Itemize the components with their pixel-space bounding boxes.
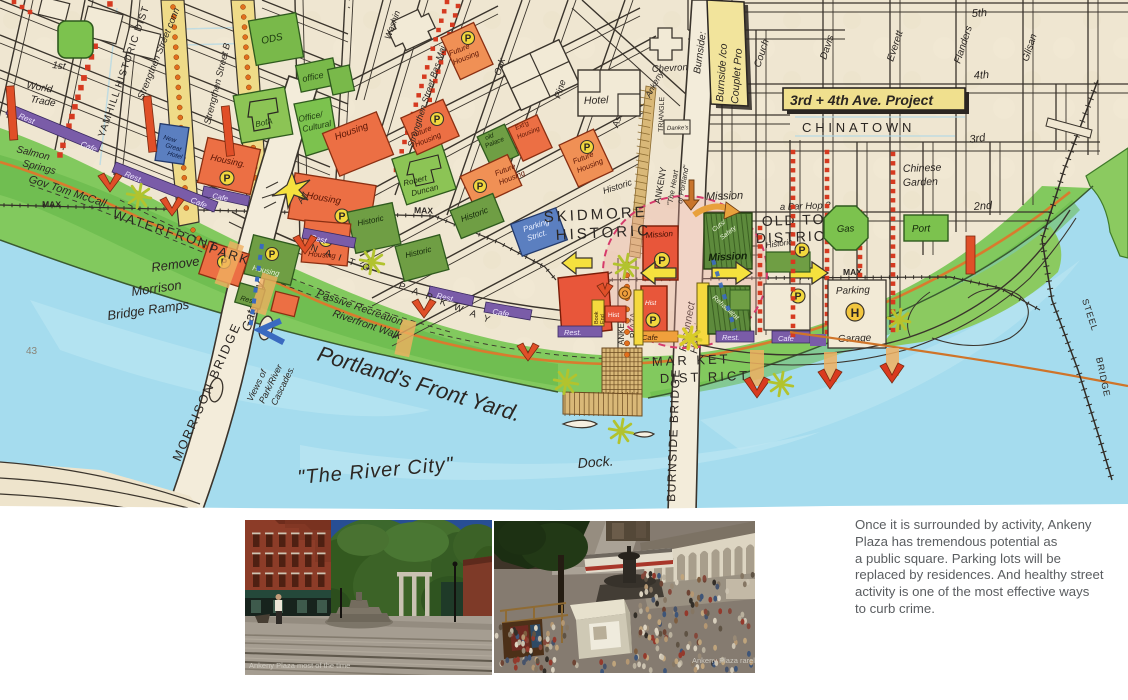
svg-text:P: P xyxy=(269,249,276,260)
svg-text:H: H xyxy=(851,306,860,320)
svg-text:P: P xyxy=(798,245,805,257)
svg-text:5th: 5th xyxy=(971,7,987,20)
svg-text:MAX: MAX xyxy=(414,205,434,216)
svg-text:43: 43 xyxy=(26,346,38,357)
svg-text:P: P xyxy=(477,181,484,192)
svg-text:Dock.: Dock. xyxy=(577,453,614,471)
svg-text:Port: Port xyxy=(912,223,932,235)
svg-text:Gas: Gas xyxy=(837,223,855,235)
svg-text:3rd: 3rd xyxy=(969,132,987,146)
svg-text:P: P xyxy=(649,315,656,327)
svg-text:P: P xyxy=(223,173,230,185)
svg-text:1st: 1st xyxy=(52,60,68,72)
svg-text:Hotel: Hotel xyxy=(584,94,610,107)
svg-text:Parking: Parking xyxy=(836,285,871,297)
svg-text:Rest.: Rest. xyxy=(722,333,740,342)
svg-text:Hist: Hist xyxy=(608,312,619,319)
svg-text:MAX: MAX xyxy=(42,199,61,209)
svg-text:DIST RICT: DIST RICT xyxy=(660,368,751,386)
svg-text:P: P xyxy=(794,291,801,303)
svg-text:Danke's: Danke's xyxy=(667,125,689,132)
svg-text:Mission: Mission xyxy=(706,190,744,203)
svg-text:4th: 4th xyxy=(973,69,989,82)
svg-text:2nd: 2nd xyxy=(972,200,993,213)
svg-text:P: P xyxy=(658,255,666,267)
svg-text:P: P xyxy=(338,211,345,223)
svg-text:Hist: Hist xyxy=(645,300,657,307)
svg-text:3rd + 4th Ave. Project: 3rd + 4th Ave. Project xyxy=(790,92,934,108)
svg-text:Cafe: Cafe xyxy=(642,333,658,342)
svg-text:Garden: Garden xyxy=(903,176,939,189)
svg-text:Rest.: Rest. xyxy=(564,328,582,337)
svg-text:CHINATOWN: CHINATOWN xyxy=(802,120,915,135)
svg-text:Ankeny Plaza rarely.: Ankeny Plaza rarely. xyxy=(692,656,755,665)
svg-text:MAR KET: MAR KET xyxy=(652,351,731,369)
svg-text:Chinese: Chinese xyxy=(903,162,942,175)
svg-text:Ankeny Plaza most of the time: Ankeny Plaza most of the time xyxy=(249,661,350,670)
svg-text:a Bar Hop ?: a Bar Hop ? xyxy=(780,200,832,213)
svg-text:O: O xyxy=(622,290,628,299)
svg-text:P: P xyxy=(434,114,441,125)
